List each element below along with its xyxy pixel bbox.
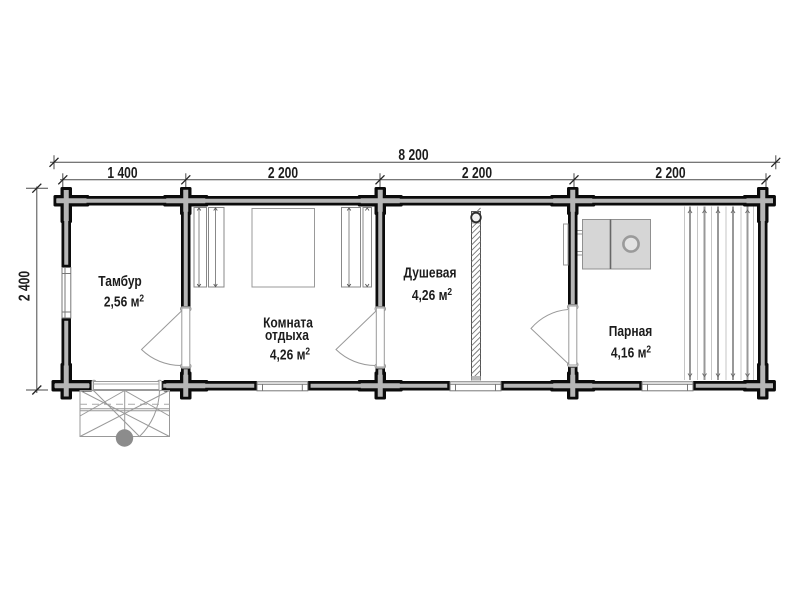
svg-text:1 400: 1 400 xyxy=(107,164,137,182)
svg-text:4,26 м2: 4,26 м2 xyxy=(270,346,310,363)
svg-text:Парная: Парная xyxy=(609,323,653,340)
svg-text:Душевая: Душевая xyxy=(404,264,457,281)
svg-text:Тамбур: Тамбур xyxy=(98,273,142,290)
svg-text:4,26 м2: 4,26 м2 xyxy=(412,286,452,303)
svg-text:2 200: 2 200 xyxy=(268,164,298,182)
svg-text:4,16 м2: 4,16 м2 xyxy=(611,344,651,361)
svg-text:2 200: 2 200 xyxy=(462,164,492,182)
svg-text:8 200: 8 200 xyxy=(398,146,428,164)
svg-text:отдыха: отдыха xyxy=(265,327,309,344)
svg-text:2 200: 2 200 xyxy=(655,164,685,182)
svg-text:2 400: 2 400 xyxy=(15,271,33,301)
svg-text:2,56 м2: 2,56 м2 xyxy=(104,293,144,310)
